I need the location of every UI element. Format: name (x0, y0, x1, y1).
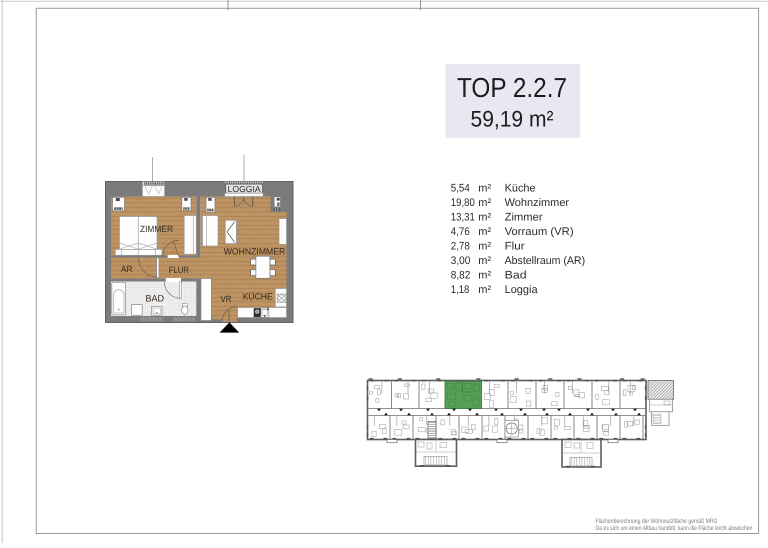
svg-text:1,18: 1,18 (451, 284, 470, 296)
svg-text:TOP 2.2.7: TOP 2.2.7 (457, 72, 567, 103)
svg-text:VR: VR (221, 294, 232, 304)
svg-text:LOGGIA: LOGGIA (228, 184, 261, 194)
svg-text:AR: AR (121, 264, 133, 274)
svg-text:Vorraum (VR): Vorraum (VR) (505, 226, 574, 238)
svg-text:Küche: Küche (505, 183, 536, 195)
svg-text:Flur: Flur (505, 240, 525, 252)
svg-text:2,78: 2,78 (451, 240, 470, 252)
svg-text:KÜCHE: KÜCHE (243, 292, 273, 302)
svg-text:Abstellraum (AR): Abstellraum (AR) (505, 255, 585, 267)
svg-text:m²: m² (478, 183, 491, 195)
svg-text:5,54: 5,54 (451, 183, 470, 195)
svg-text:m²: m² (478, 240, 491, 252)
svg-text:59,19 m²: 59,19 m² (471, 107, 554, 132)
svg-text:WOHNZIMMER: WOHNZIMMER (224, 247, 286, 257)
svg-text:BAD: BAD (146, 293, 165, 304)
svg-text:8,82: 8,82 (451, 269, 471, 281)
svg-text:Zimmer: Zimmer (505, 212, 543, 224)
svg-text:Loggia: Loggia (505, 284, 539, 296)
svg-text:Wohnzimmer: Wohnzimmer (505, 197, 570, 209)
svg-text:m²: m² (478, 269, 491, 281)
svg-text:3,00: 3,00 (451, 255, 471, 267)
svg-text:Bad: Bad (505, 269, 527, 281)
svg-text:FLUR: FLUR (169, 265, 189, 275)
svg-text:m²: m² (478, 255, 491, 267)
svg-text:4,76: 4,76 (451, 226, 470, 238)
svg-text:Da es sich um einen Altbau han: Da es sich um einen Altbau handelt, kann… (596, 525, 753, 532)
svg-text:m²: m² (478, 212, 491, 224)
svg-text:19,80: 19,80 (451, 197, 475, 209)
svg-text:Flächenberechnung der Wohnnutz: Flächenberechnung der Wohnnutzfläche gem… (596, 518, 718, 525)
svg-text:ZIMMER: ZIMMER (140, 224, 173, 234)
svg-text:13,31: 13,31 (451, 212, 475, 224)
svg-text:m²: m² (478, 197, 491, 209)
svg-text:m²: m² (478, 284, 491, 296)
svg-text:m²: m² (478, 226, 491, 238)
